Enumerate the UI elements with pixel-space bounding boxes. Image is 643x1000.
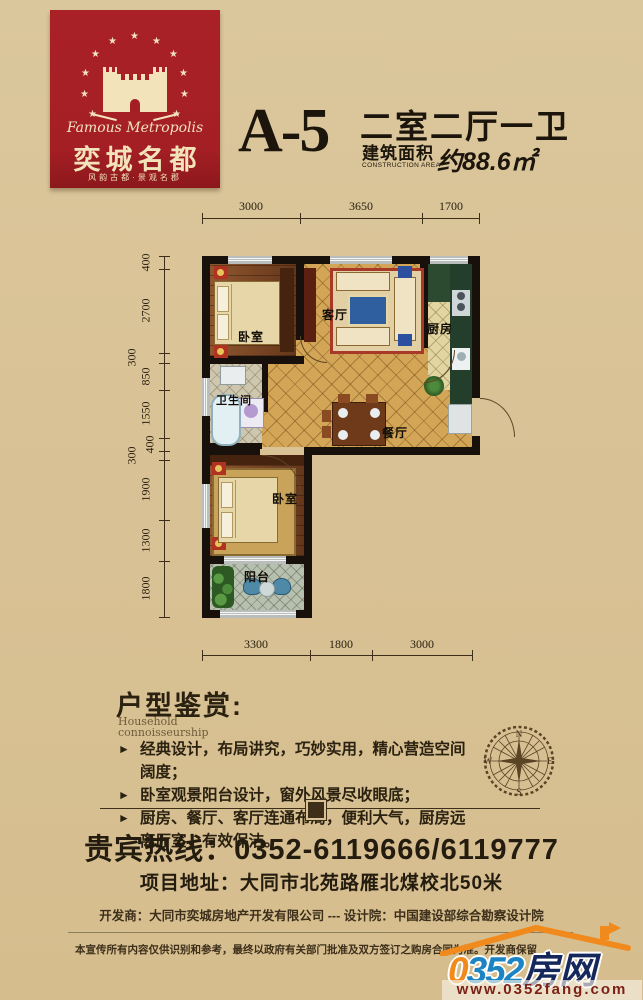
compass-e: E — [547, 756, 553, 766]
dim-top-3: 1700 — [421, 199, 481, 214]
door-kitchen — [424, 350, 455, 383]
door-bedroom2 — [262, 455, 301, 494]
label-balcony: 阳台 — [244, 568, 270, 585]
dim-left-1: 400 — [139, 240, 154, 286]
brand-slogan: 风韵古都·景观名郡 — [50, 172, 220, 183]
floor-bath — [210, 364, 262, 445]
floor-balcony — [210, 564, 304, 610]
castle-icon — [103, 68, 167, 120]
area-label-block: 建筑面积 CONSTRUCTION AREA — [362, 145, 440, 170]
dim-line-left — [164, 256, 165, 617]
compass-rose: N E S W — [481, 723, 557, 799]
chair — [338, 394, 350, 403]
window-balcony — [220, 610, 296, 618]
dim-line-bottom — [202, 655, 473, 656]
label-bedroom1: 卧室 — [238, 328, 264, 345]
sofa-main — [394, 277, 416, 341]
floor-kitchen — [428, 264, 472, 390]
dim-left-10: 1800 — [139, 566, 154, 612]
door-bedroom1 — [300, 336, 327, 363]
bed2-rug — [212, 468, 296, 556]
nightstand — [212, 462, 226, 475]
side-table — [398, 334, 412, 346]
dim-left-3: 300 — [125, 335, 140, 381]
kitchen-counter — [450, 264, 472, 406]
appreciation-subtitle: Household connoisseurship — [118, 716, 209, 738]
floor-bedroom2 — [210, 455, 304, 556]
vip-hotline: 贵宾热线：0352-6119666/6119777 — [0, 826, 643, 868]
dim-bottom-3: 3000 — [392, 637, 452, 652]
living-carpet — [330, 268, 424, 354]
sofa-top — [336, 272, 390, 291]
dim-left-6: 400 — [143, 422, 158, 468]
chair — [322, 410, 331, 422]
side-table — [398, 266, 412, 278]
dim-left-9: 1300 — [139, 518, 154, 564]
tv-cabinet — [304, 268, 316, 342]
window-bedroom1 — [228, 256, 272, 264]
sofa-bottom — [336, 327, 390, 346]
balcony-chair — [272, 578, 291, 595]
kitchen-plants — [428, 264, 452, 302]
bath-sink — [220, 366, 246, 385]
balcony-plants — [212, 566, 234, 608]
door-entry — [480, 398, 515, 437]
nightstand — [212, 537, 226, 550]
area-label: 建筑面积 — [362, 145, 440, 162]
label-bath: 卫生间 — [216, 392, 252, 408]
wardrobe2 — [210, 455, 304, 465]
balcony-table — [259, 581, 275, 597]
label-kitchen: 厨房 — [427, 320, 453, 337]
dining-table — [332, 402, 386, 446]
brand-name-en: Famous Metropolis — [50, 120, 220, 136]
label-living: 客厅 — [322, 306, 348, 323]
dim-top-2: 3650 — [331, 199, 391, 214]
unit-layout: 二室二厅一卫 — [360, 100, 570, 148]
window-bedroom2 — [202, 484, 210, 528]
balcony-chair — [243, 578, 262, 595]
dim-left-2: 2700 — [139, 288, 154, 334]
sink — [452, 348, 470, 370]
window-bath — [202, 378, 210, 416]
bullet-1: 经典设计，布局讲究，巧妙实用，精心营造空间阔度； — [118, 738, 474, 784]
compass-w: W — [484, 756, 493, 766]
bathtub — [211, 394, 241, 446]
divider-ornament — [306, 800, 326, 820]
wardrobe1 — [280, 268, 294, 352]
dim-bottom-1: 3300 — [226, 637, 286, 652]
area-label-en: CONSTRUCTION AREA — [362, 162, 440, 170]
plant — [424, 376, 444, 396]
chair — [322, 426, 331, 438]
site-logo: 0352房网 www.0352fang.com — [440, 922, 643, 1000]
chair — [366, 394, 378, 403]
compass-s: S — [516, 787, 521, 797]
unit-code: A-5 — [238, 96, 368, 167]
window-living — [330, 256, 392, 264]
bed2 — [218, 477, 278, 543]
label-dining: 餐厅 — [382, 424, 408, 441]
site-url: www.0352fang.com — [442, 980, 642, 1000]
dim-left-7: 300 — [125, 433, 140, 479]
nightstand — [214, 345, 228, 358]
nightstand — [214, 266, 228, 279]
washer — [238, 398, 264, 428]
floor-living-dining — [210, 264, 472, 447]
compass-n: N — [516, 729, 523, 739]
brand-logo-box: ★★ ★★ ★★ ★★ ★★ ★ Famous Metropolis 奕城名都 … — [50, 10, 220, 188]
window-balcony-door — [224, 556, 286, 564]
area-value: 约88.6㎡ — [437, 142, 536, 178]
floorplan-poster: ★★ ★★ ★★ ★★ ★★ ★ Famous Metropolis 奕城名都 … — [0, 0, 643, 1000]
dim-bottom-2: 1800 — [311, 637, 371, 652]
project-address: 项目地址：大同市北苑路雁北煤校北50米 — [0, 868, 643, 895]
bed1 — [214, 281, 280, 345]
floor-bedroom1 — [210, 264, 296, 356]
dim-line-top — [202, 218, 480, 219]
coffee-table — [348, 295, 388, 326]
window-kitchen — [430, 256, 468, 264]
label-bedroom2: 卧室 — [272, 490, 298, 507]
stove — [452, 290, 470, 316]
dim-left-8: 1900 — [139, 467, 154, 513]
dim-top-1: 3000 — [221, 199, 281, 214]
fridge — [448, 404, 472, 434]
bullet-2: 卧室观景阳台设计，窗外风景尽收眼底； — [118, 784, 474, 807]
